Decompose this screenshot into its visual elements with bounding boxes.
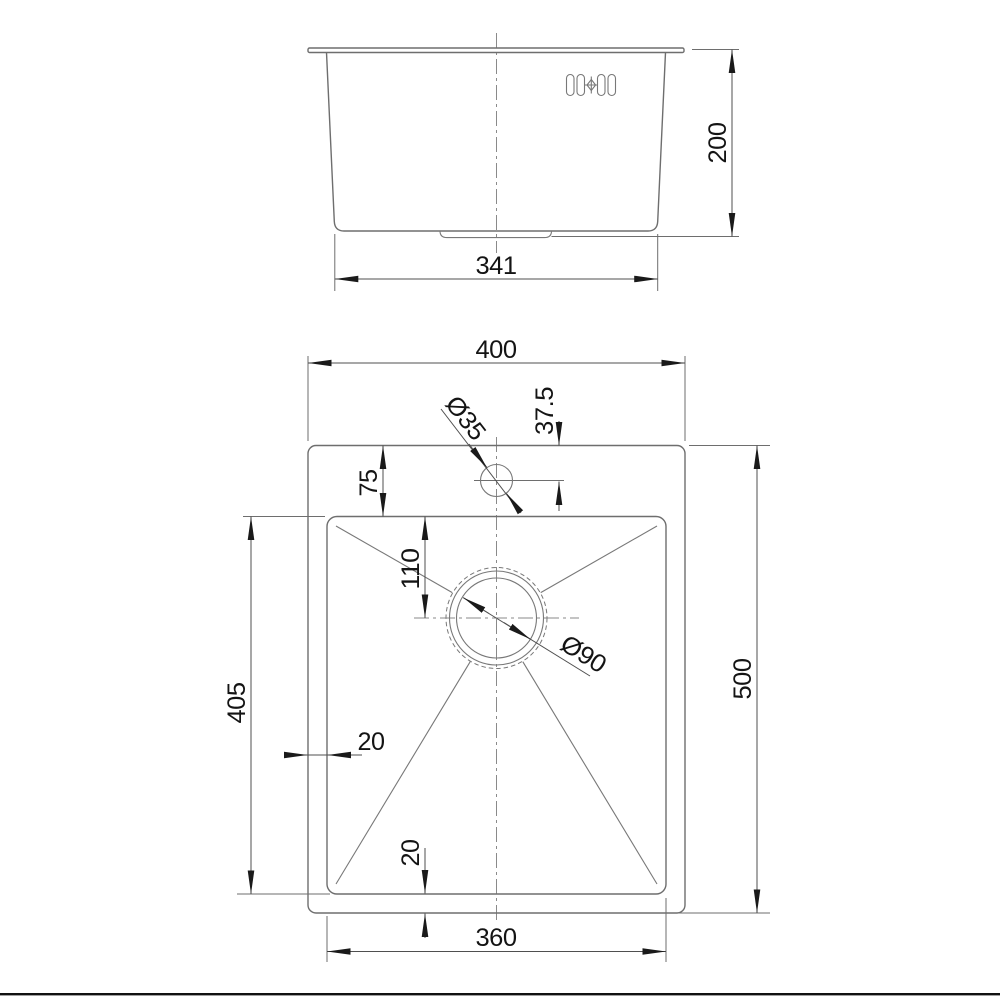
tap-hole-diameter-label: Ø35	[439, 391, 491, 446]
bottom-border-line	[0, 993, 1000, 995]
plan-height-label: 500	[729, 659, 757, 700]
sink-flange-outline	[308, 48, 684, 53]
front-height-dimension: 200	[552, 50, 740, 237]
diamond-crosshair	[585, 77, 599, 94]
rim-left-label: 20	[358, 728, 385, 756]
rim-top-dimension: 75	[355, 446, 383, 517]
sink-drawing-svg: 341 200	[0, 0, 1000, 1000]
plan-width-label: 400	[476, 336, 517, 364]
rim-left-dimension: 20	[284, 728, 385, 756]
rim-bottom-label: 20	[397, 840, 425, 867]
technical-drawing-page: 341 200	[0, 0, 1000, 1000]
drain-offset-label: 110	[397, 549, 425, 590]
drain-diameter-leader: Ø90	[463, 598, 611, 679]
bowl-height-label: 405	[223, 683, 251, 724]
drain-recess-outline	[440, 231, 552, 238]
front-bottom-width-label: 341	[476, 252, 517, 280]
rim-top-label: 75	[355, 470, 383, 497]
front-elevation-view: 341 200	[308, 33, 739, 291]
bowl-height-dimension: 405	[223, 517, 330, 895]
tap-offset-dimension: 37.5	[531, 387, 559, 511]
plan-view: 400 500 360 405 75 110	[223, 336, 770, 962]
plan-width-dimension: 400	[308, 336, 685, 441]
front-height-label: 200	[704, 123, 732, 164]
bowl-width-label: 360	[476, 924, 517, 952]
tap-hole-diameter-leader: Ø35	[439, 391, 521, 513]
tap-slots-and-diamond-icon	[567, 75, 616, 96]
drain-offset-dimension: 110	[397, 517, 425, 619]
tap-offset-label: 37.5	[531, 387, 559, 435]
rim-bottom-dimension: 20	[397, 840, 425, 939]
